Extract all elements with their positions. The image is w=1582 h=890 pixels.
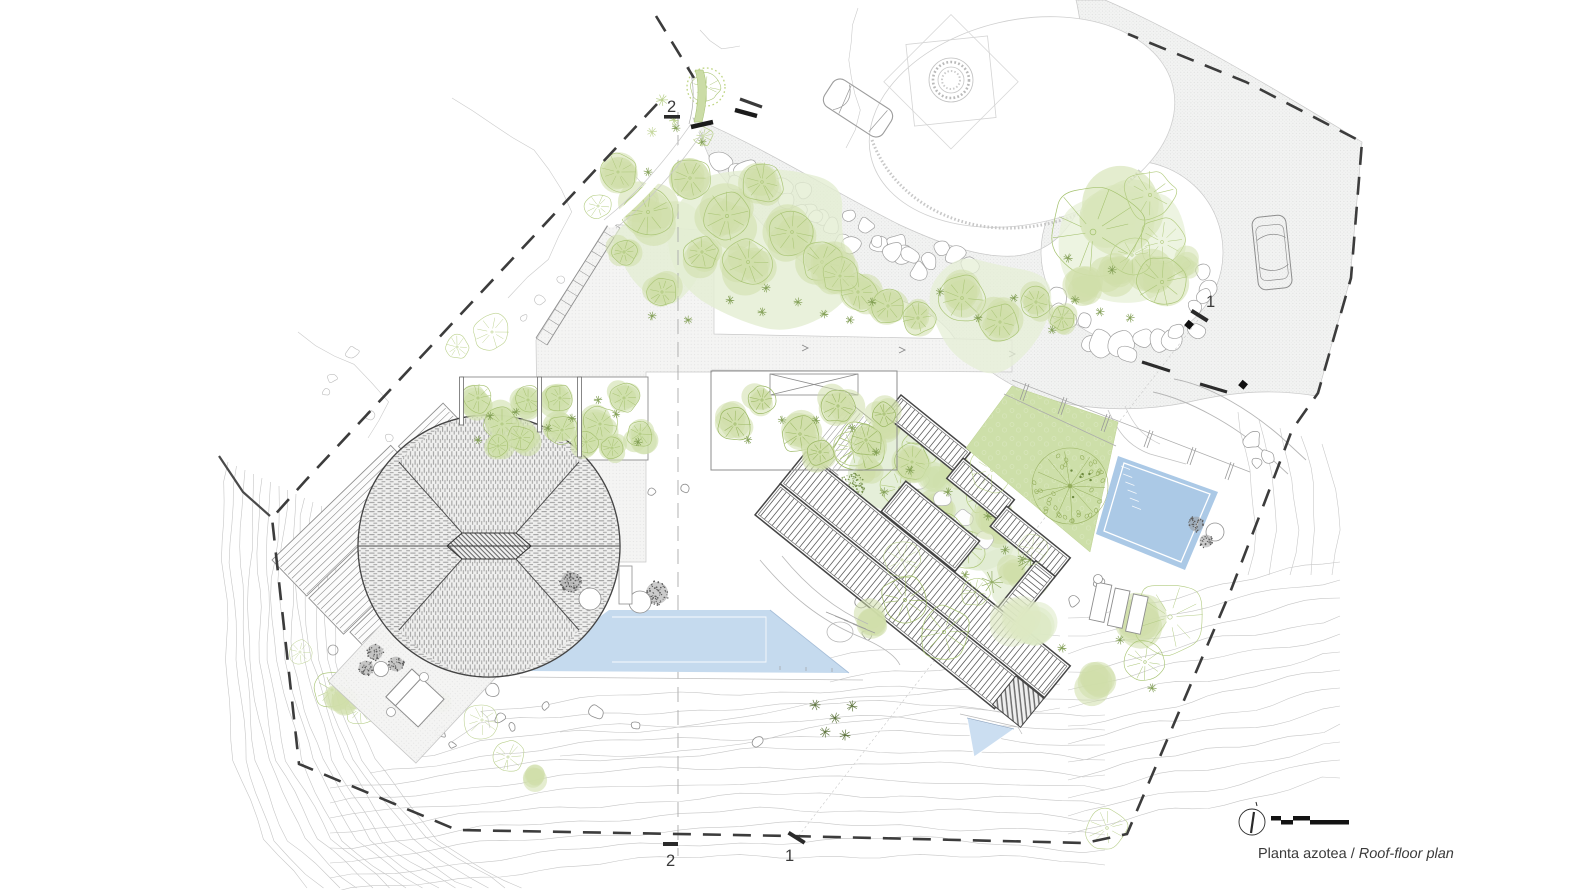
svg-text:1: 1	[785, 847, 794, 865]
svg-text:Planta azotea / Roof-floor pla: Planta azotea / Roof-floor plan	[1258, 846, 1454, 862]
svg-text:2: 2	[667, 98, 676, 116]
svg-text:1: 1	[1206, 293, 1215, 311]
svg-text:2: 2	[666, 852, 675, 870]
